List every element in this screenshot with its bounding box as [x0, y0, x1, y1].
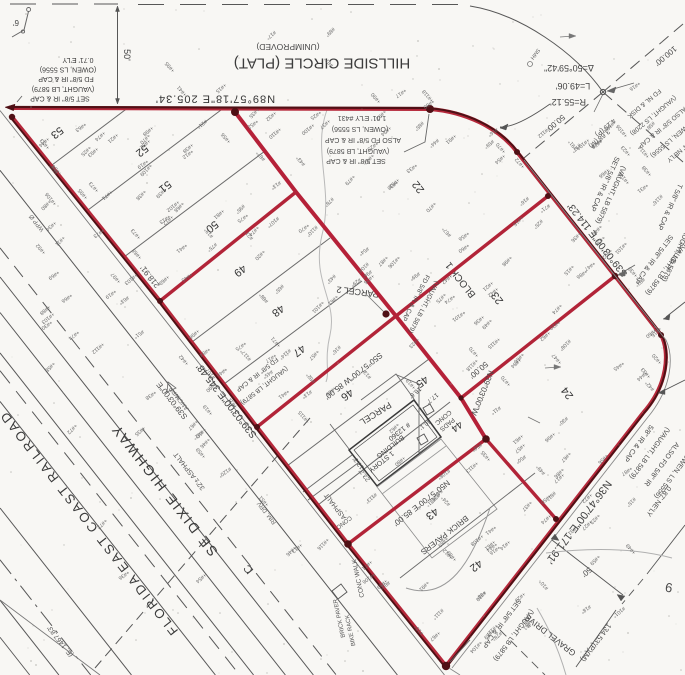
svg-text:50': 50' [122, 49, 132, 61]
svg-text:(VAUGHT, LB 5879): (VAUGHT, LB 5879) [327, 147, 390, 154]
svg-text:6': 6' [13, 18, 19, 27]
svg-text:HILLSIDE CIRCLE (PLAT): HILLSIDE CIRCLE (PLAT) [234, 55, 410, 72]
svg-text:(OWEN, LS 5556): (OWEN, LS 5556) [40, 66, 96, 73]
svg-text:(OWEN, LS 5556): (OWEN, LS 5556) [332, 125, 388, 132]
svg-text:(UNIMPROVED): (UNIMPROVED) [256, 42, 319, 52]
svg-text:(VAUGHT, LB 5879): (VAUGHT, LB 5879) [32, 85, 95, 92]
svg-text:ALSO FD 5/8" IR & CAP: ALSO FD 5/8" IR & CAP [325, 136, 401, 143]
svg-text:SET 5/8" IR & CAP: SET 5/8" IR & CAP [30, 95, 90, 102]
svg-text:R=55.12': R=55.12' [550, 97, 586, 107]
svg-text:Δ=50°59'42": Δ=50°59'42" [544, 63, 594, 73]
svg-text:L=49.06': L=49.06' [555, 81, 590, 91]
svg-text:N89°57'18"E 205.34': N89°57'18"E 205.34' [155, 93, 275, 105]
svg-text:0.71' E'LY: 0.71' E'LY [62, 56, 93, 63]
svg-text:FD 5/8" IR & CAP: FD 5/8" IR & CAP [38, 75, 94, 82]
svg-text:SET 5/8" IR & CAP: SET 5/8" IR & CAP [326, 157, 386, 164]
